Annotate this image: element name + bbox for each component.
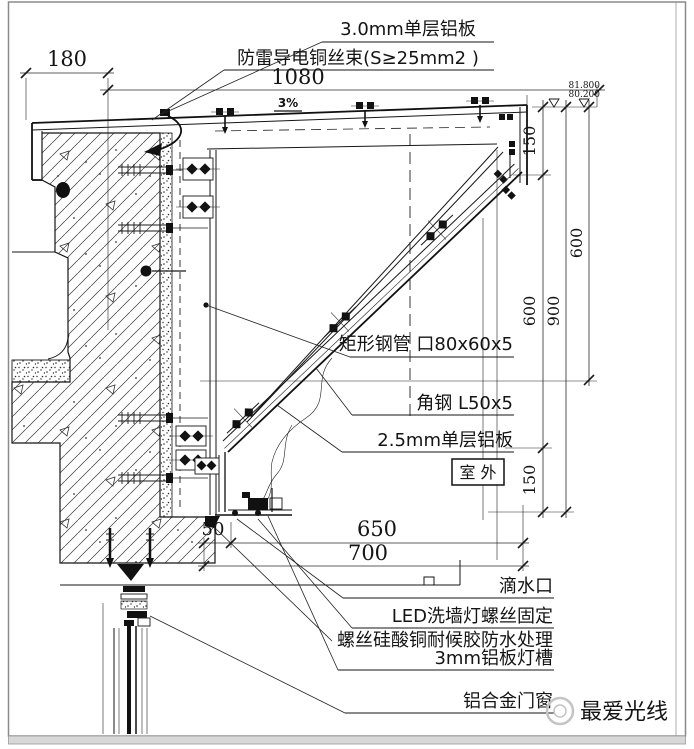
- sealant-dot: [56, 182, 70, 198]
- waterproof-layer: [160, 133, 172, 517]
- bottom-band: [9, 736, 686, 744]
- elevation-lower: 80.200: [569, 90, 601, 100]
- angle-steel-text: 角钢 L50x5: [416, 393, 513, 414]
- dim-600-outer: 600: [567, 228, 586, 259]
- slope-annotation: 3%: [274, 96, 302, 111]
- detail-drawing-canvas: 180 1080 3% 150 600 150 900 600 81.800 8…: [0, 0, 694, 749]
- door-window-text: 铝合金门窗: [463, 691, 553, 712]
- watermark-text: 最爱光线: [580, 700, 668, 725]
- dim-700-value: 700: [348, 541, 388, 565]
- rect-steel-tube-text: 矩形钢管 口80x60x5: [339, 334, 513, 355]
- lightning-wire-text: 防雷导电铜丝束(S≥25mm2 ): [237, 48, 479, 69]
- construction-detail-page: 180 1080 3% 150 600 150 900 600 81.800 8…: [0, 0, 694, 749]
- led-fixing-text: LED洗墙灯螺丝固定: [392, 606, 553, 627]
- outdoor-text: 室 外: [459, 463, 496, 482]
- dim-180-value: 180: [47, 47, 87, 71]
- screed-band: [12, 360, 70, 382]
- dim-900-value: 900: [544, 296, 563, 327]
- bracket-fitting: [176, 158, 220, 180]
- bracket-fitting: [176, 196, 220, 218]
- drip-outlet-text: 滴水口: [499, 576, 553, 597]
- dim-650-value: 650: [357, 517, 397, 541]
- panel-3mm-text: 3.0mm单层铝板: [340, 19, 476, 40]
- slope-value: 3%: [278, 96, 298, 110]
- bracket-fitting: [169, 426, 213, 446]
- dim-150-top: 150: [520, 126, 539, 157]
- dim-150-bottom: 150: [520, 465, 539, 496]
- dim-50-value: 50: [202, 519, 225, 540]
- outdoor-badge: 室 外: [452, 459, 504, 485]
- panel-25mm-text: 2.5mm单层铝板: [377, 430, 513, 451]
- lamp-trough-text: 3mm铝板灯槽: [434, 648, 553, 669]
- dim-600-inner: 600: [520, 296, 539, 327]
